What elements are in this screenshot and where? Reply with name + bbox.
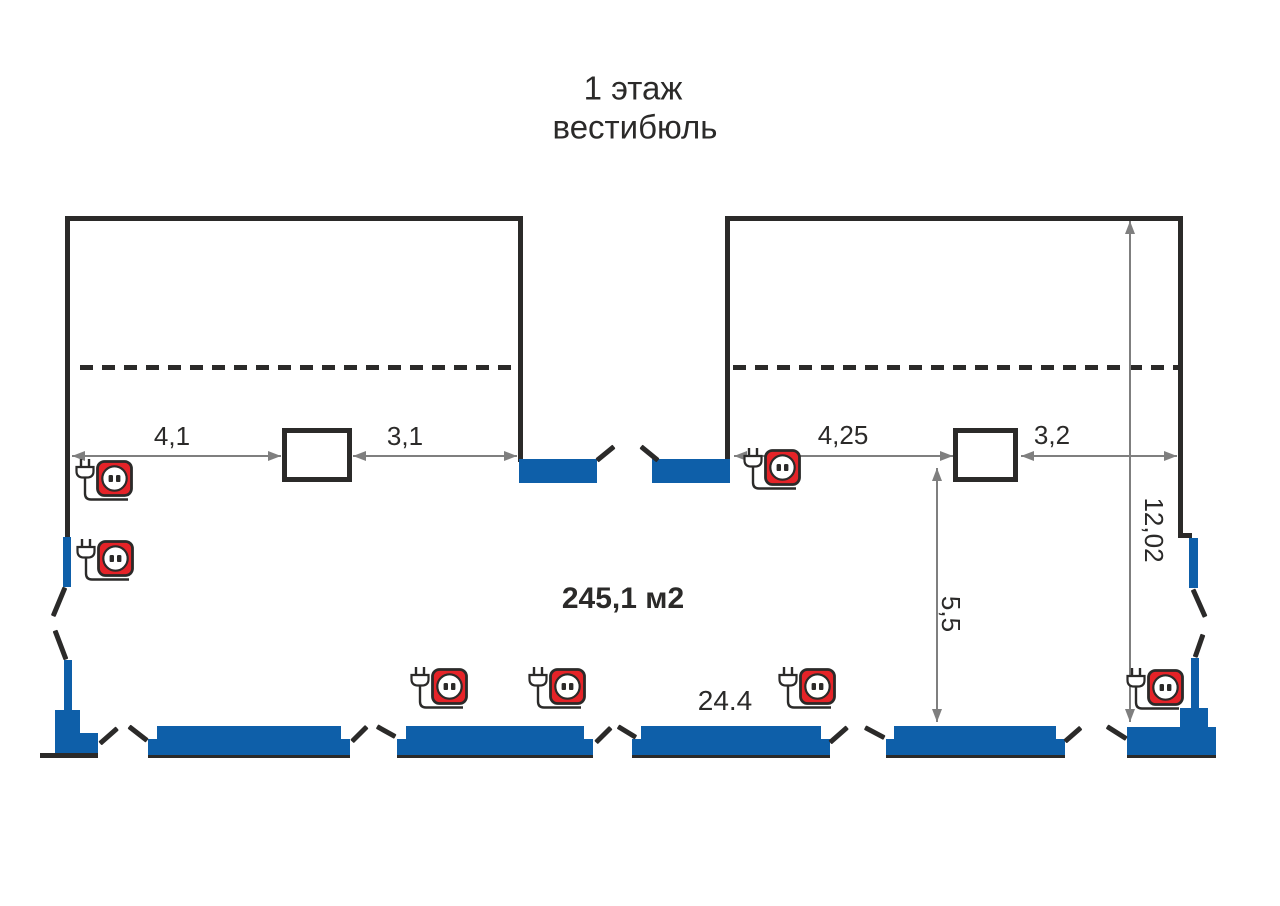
outlet-symbol: [526, 666, 588, 714]
socket-hole-left: [777, 464, 781, 471]
wall-left-room-top: [65, 216, 523, 221]
storefront-bar-2: [397, 739, 593, 758]
power-outlet-icon-right-room-wall: [741, 447, 803, 495]
plug-body-icon: [745, 456, 762, 467]
glazing-left-lower: [64, 660, 72, 710]
plug-body-icon: [412, 675, 429, 686]
socket-hole-right: [116, 475, 120, 482]
plan-title-floor: 1 этаж: [584, 72, 683, 105]
socket-face-icon: [805, 674, 829, 698]
socket-hole-right: [117, 555, 121, 562]
door-swing-bottom-1a: [98, 726, 119, 745]
storefront-bar-3-top: [641, 726, 821, 739]
dimension-line-right-b: [1021, 455, 1177, 457]
plug-prongs-icon: [749, 448, 757, 456]
door-swing-bottom-2a: [350, 725, 368, 743]
wall-left-room-right: [518, 216, 523, 462]
dimension-label-height: 12,02: [1141, 497, 1167, 562]
outlet-symbol: [408, 666, 470, 714]
plug-body-icon: [780, 675, 797, 686]
door-swing-bottom-4a: [828, 725, 849, 744]
plug-body-icon: [530, 675, 547, 686]
door-swing-bottom-5b: [1106, 724, 1128, 741]
door-swing-bottom-5a: [1063, 726, 1082, 744]
dimension-label-bottom: 24.4: [698, 687, 753, 715]
door-swing-left-wall-lower: [53, 630, 69, 661]
outlet-symbol: [74, 538, 136, 586]
socket-face-icon: [555, 674, 579, 698]
power-outlet-icon-bottom-storefront-2: [526, 666, 588, 714]
storefront-bar-2-top: [406, 726, 584, 739]
dimension-label-left-a: 4,1: [154, 423, 190, 449]
glazing-right-upper: [1189, 538, 1198, 588]
wall-right-room-left: [725, 216, 730, 462]
column-right: [953, 428, 1018, 482]
floor-plan-canvas: 1 этаж вестибюль: [0, 0, 1280, 906]
power-outlet-icon-bottom-storefront-3: [776, 666, 838, 714]
pedestal-left-upper: [55, 710, 80, 733]
socket-hole-right: [819, 683, 823, 690]
door-swing-left-wall-upper: [51, 587, 67, 618]
area-label: 245,1 м2: [562, 584, 684, 614]
plug-prongs-icon: [81, 459, 89, 467]
storefront-bar-1: [148, 739, 350, 758]
power-outlet-icon-left-wall: [74, 538, 136, 586]
socket-face-icon: [103, 546, 127, 570]
plug-prongs-icon: [534, 667, 542, 675]
socket-face-icon: [437, 674, 461, 698]
plug-prongs-icon: [82, 539, 90, 547]
socket-face-icon: [102, 466, 126, 490]
pedestal-left-lower: [55, 733, 98, 755]
wall-left-room-left: [65, 216, 70, 537]
glazing-right-lower: [1191, 658, 1199, 710]
door-swing-bottom-3a: [594, 726, 612, 744]
power-outlet-icon-bottom-right-corner: [1124, 667, 1186, 715]
door-swing-entrance-right: [639, 445, 659, 463]
socket-hole-right: [569, 683, 573, 690]
column-left: [282, 428, 352, 482]
socket-hole-right: [451, 683, 455, 690]
plug-prongs-icon: [1132, 668, 1140, 676]
plug-body-icon: [1128, 676, 1145, 687]
storefront-bar-4: [886, 739, 1065, 758]
socket-hole-right: [1167, 684, 1171, 691]
wall-right-room-top: [725, 216, 1183, 221]
door-swing-bottom-3b: [617, 724, 638, 739]
dimension-line-height: [1129, 221, 1131, 722]
dashed-partition-left: [80, 365, 515, 370]
socket-hole-left: [1160, 684, 1164, 691]
plug-prongs-icon: [416, 667, 424, 675]
storefront-bar-3: [632, 739, 830, 758]
socket-hole-left: [444, 683, 448, 690]
entrance-door-left: [519, 459, 597, 483]
door-swing-bottom-4b: [864, 725, 886, 740]
door-swing-right-wall-upper: [1191, 588, 1208, 617]
storefront-bar-4-top: [894, 726, 1056, 739]
plug-prongs-icon: [784, 667, 792, 675]
dimension-label-right-b: 3,2: [1034, 422, 1070, 448]
dashed-partition-right: [733, 365, 1178, 370]
socket-hole-left: [562, 683, 566, 690]
outlet-symbol: [73, 458, 135, 506]
socket-hole-left: [110, 555, 114, 562]
socket-hole-left: [812, 683, 816, 690]
door-swing-bottom-1b: [127, 725, 148, 743]
wall-right-room-right: [1178, 216, 1183, 534]
socket-hole-right: [784, 464, 788, 471]
plan-title-room: вестибюль: [553, 111, 718, 144]
baseline-left: [40, 753, 98, 758]
door-swing-entrance-left: [595, 445, 615, 463]
door-swing-right-wall-lower: [1193, 634, 1206, 658]
dimension-line-left-a: [72, 455, 281, 457]
outlet-symbol: [1124, 667, 1186, 715]
dimension-label-depth: 5,5: [938, 596, 964, 632]
plug-body-icon: [77, 467, 94, 478]
pedestal-right-lower: [1127, 727, 1216, 758]
power-outlet-icon-bottom-storefront-1: [408, 666, 470, 714]
dimension-label-left-b: 3,1: [387, 423, 423, 449]
socket-face-icon: [770, 455, 794, 479]
dimension-label-right-a: 4,25: [818, 422, 869, 448]
plug-body-icon: [78, 547, 95, 558]
socket-face-icon: [1153, 675, 1177, 699]
dimension-line-left-b: [353, 455, 517, 457]
power-outlet-icon-left-room-wall: [73, 458, 135, 506]
storefront-bar-1-top: [157, 726, 341, 739]
outlet-symbol: [776, 666, 838, 714]
socket-hole-left: [109, 475, 113, 482]
entrance-door-right: [652, 459, 730, 483]
door-swing-bottom-2b: [376, 724, 397, 739]
outlet-symbol: [741, 447, 803, 495]
glazing-left-upper: [63, 537, 71, 587]
